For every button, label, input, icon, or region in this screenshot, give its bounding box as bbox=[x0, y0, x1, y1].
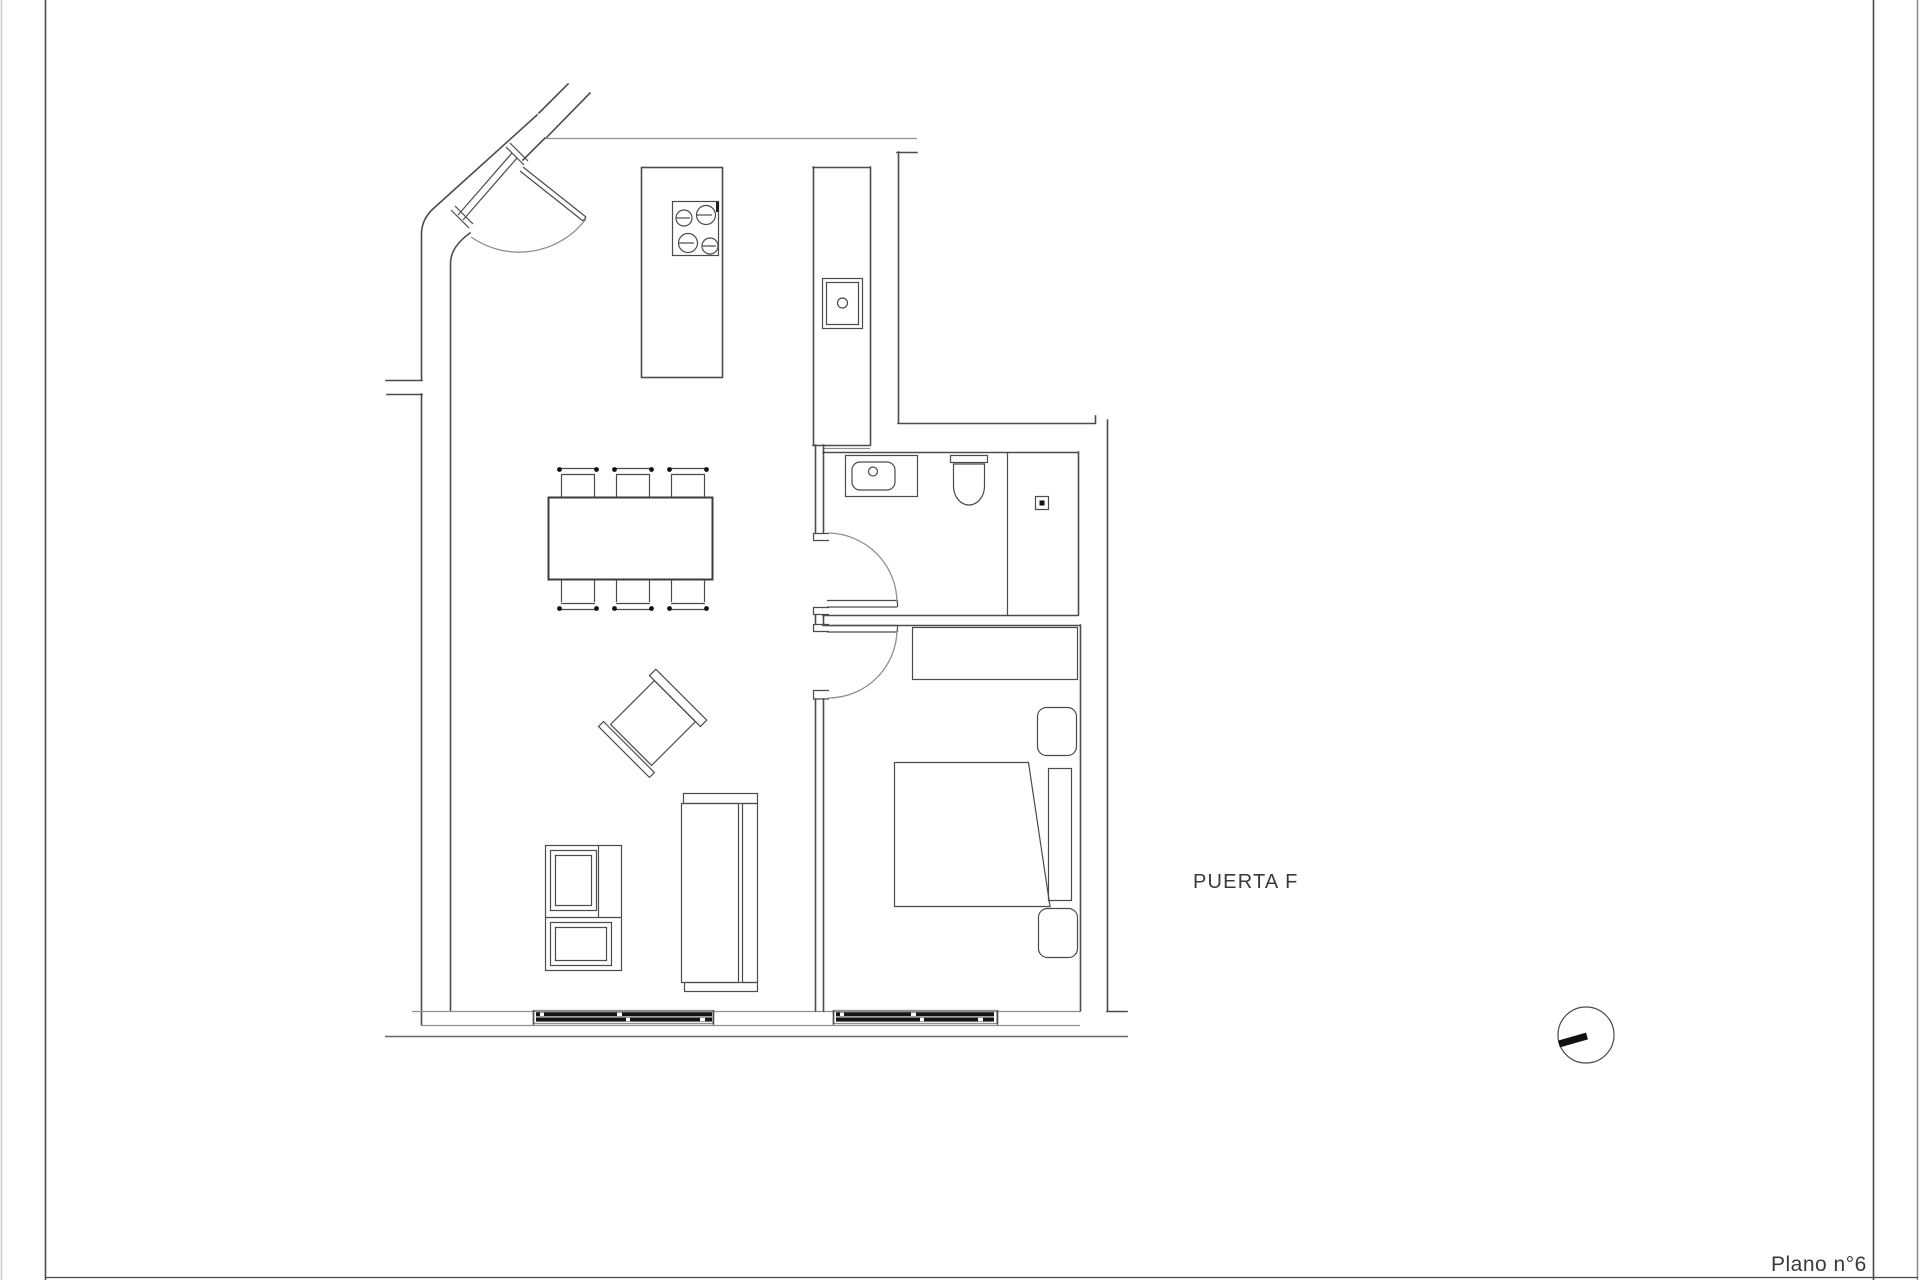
chair bbox=[557, 467, 599, 497]
plan-number-label: Plano n°6 bbox=[1771, 1253, 1867, 1276]
pillow bbox=[1039, 909, 1078, 958]
wardrobe bbox=[913, 628, 1078, 680]
chair bbox=[612, 580, 654, 611]
door-leaf-open bbox=[520, 167, 586, 221]
bedroom-door bbox=[827, 625, 898, 698]
sheet-border bbox=[2, 0, 1919, 1280]
kitchen bbox=[642, 167, 871, 449]
door-swing-arc bbox=[471, 219, 586, 252]
kitchen-island bbox=[642, 168, 723, 378]
duvet-fold bbox=[1049, 769, 1072, 901]
bathroom bbox=[823, 452, 1078, 615]
tv-stand bbox=[545, 845, 622, 971]
exterior-walls bbox=[385, 84, 1128, 1037]
living-room-window bbox=[534, 1011, 714, 1025]
interior-walls bbox=[813, 445, 1081, 1011]
chair bbox=[557, 580, 599, 611]
shower-drain-icon bbox=[1036, 497, 1049, 510]
toilet bbox=[951, 456, 988, 506]
bedroom bbox=[827, 625, 1078, 958]
bathroom-door bbox=[827, 533, 898, 607]
dining-table bbox=[549, 498, 713, 580]
chair bbox=[667, 580, 709, 611]
chair bbox=[667, 467, 709, 497]
door-leaf-closed bbox=[458, 153, 517, 220]
stove-icon bbox=[673, 202, 719, 256]
door-jamb bbox=[451, 143, 528, 228]
pillow bbox=[1038, 708, 1077, 756]
sofa bbox=[682, 794, 758, 992]
floor-plan-canvas: PUERTA F Plano n°6 bbox=[0, 0, 1920, 1280]
kitchen-sink bbox=[823, 279, 863, 329]
drawing-sheet: PUERTA F Plano n°6 bbox=[0, 0, 1920, 1280]
door-label: PUERTA F bbox=[1193, 871, 1299, 893]
bedroom-window bbox=[834, 1011, 998, 1025]
dining-set bbox=[549, 467, 713, 611]
entrance-door bbox=[451, 143, 586, 252]
bed bbox=[895, 708, 1078, 958]
armchair bbox=[599, 669, 707, 777]
duvet bbox=[895, 763, 1051, 907]
north-indicator-icon bbox=[1558, 1007, 1614, 1063]
bathroom-sink bbox=[846, 456, 918, 497]
stove-burners-icon bbox=[676, 206, 718, 255]
chair bbox=[612, 467, 654, 497]
